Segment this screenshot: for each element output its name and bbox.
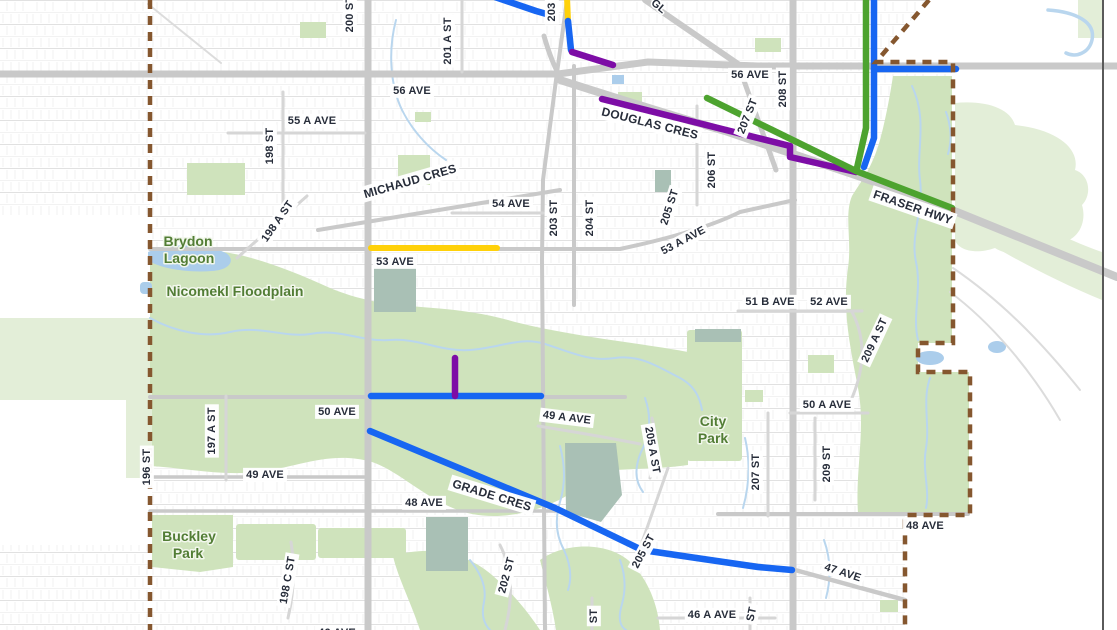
street-label: 52 AVE	[807, 295, 851, 309]
street-label-text: 49 AVE	[246, 469, 284, 481]
outside-parcels-sw	[0, 545, 150, 630]
place-label-text: Lagoon	[164, 250, 215, 266]
street-label: ST	[587, 606, 601, 627]
place-label: Park	[173, 545, 204, 561]
street-label: 203 ST	[547, 197, 561, 240]
street-label: 198 ST	[263, 125, 277, 168]
map-svg: BrydonLagoonNicomekl FloodplainCityParkB…	[0, 0, 1117, 630]
street-label: 209 ST	[820, 443, 834, 486]
place-label-text: City	[700, 413, 727, 429]
downtown-pond	[612, 75, 624, 84]
street-label: 208 ST	[776, 68, 790, 111]
street-label-text: 48 AVE	[906, 520, 944, 532]
street-label-text: 50 A AVE	[803, 399, 851, 411]
street-label-text: 54 AVE	[492, 198, 530, 210]
street-label-text: 201 A ST	[442, 17, 454, 64]
street-label: 50 A AVE	[800, 398, 854, 412]
street-label: 56 AVE	[390, 84, 434, 98]
street-label: 207 ST	[749, 451, 763, 494]
street-label: 48 AVE	[903, 519, 947, 533]
street-label: 196 ST	[140, 446, 154, 489]
street-label-text: 52 AVE	[810, 296, 848, 308]
street-label: 56 AVE	[728, 68, 772, 82]
street-label-text: 200 ST	[344, 0, 356, 32]
outside-green-west-1	[0, 318, 150, 400]
street-label: 54 AVE	[489, 197, 533, 211]
street-label-text: 46 A AVE	[688, 609, 736, 621]
street-label-text: 203	[546, 3, 558, 22]
place-label: Park	[698, 430, 729, 446]
street-label-text: 196 ST	[141, 449, 153, 486]
street-label-text: 55 A AVE	[288, 115, 336, 127]
street-label: 204 ST	[583, 197, 597, 240]
street-label-text: 209 ST	[821, 446, 833, 483]
place-label-text: Park	[698, 430, 729, 446]
street-label-text: 198 ST	[264, 128, 276, 165]
outside-parcels-nw	[0, 0, 150, 215]
street-label: 206 ST	[705, 149, 719, 192]
street-label: 48 AVE	[402, 496, 446, 510]
street-label: 55 A AVE	[285, 114, 339, 128]
street-label: 200 ST	[343, 0, 357, 35]
street-label-text: 203 ST	[548, 200, 560, 237]
greenbelt-strip-1	[236, 524, 316, 560]
street-label-text: 48 AVE	[405, 497, 443, 509]
street-label-text: 208 ST	[777, 71, 789, 108]
street-label-text: 50 AVE	[318, 406, 356, 418]
street-label-text: 56 AVE	[731, 69, 769, 81]
street-label-text: 51 B AVE	[745, 296, 794, 308]
street-label-text: ST	[588, 609, 600, 624]
street-label: 203	[545, 0, 559, 24]
map-canvas: BrydonLagoonNicomekl FloodplainCityParkB…	[0, 0, 1117, 630]
street-label: 53 AVE	[373, 255, 417, 269]
street-label: 197 A ST	[205, 404, 219, 457]
street-label: 50 AVE	[315, 405, 359, 419]
place-label-text: Nicomekl Floodplain	[167, 283, 304, 299]
street-label-text: 56 AVE	[393, 85, 431, 97]
city-park-pond	[695, 329, 741, 342]
place-label: Lagoon	[164, 250, 215, 266]
street-label: 201 A ST	[441, 14, 455, 67]
place-label-text: Park	[173, 545, 204, 561]
street-label: 49 AVE	[243, 468, 287, 482]
greenbelt-strip-2	[318, 528, 406, 558]
place-label: City	[700, 413, 727, 429]
place-label-text: Brydon	[164, 233, 213, 249]
street-label: 46 A AVE	[685, 608, 739, 622]
street-label-text: 197 A ST	[206, 407, 218, 454]
street-label-text: 53 AVE	[376, 256, 414, 268]
place-label: Buckley	[162, 528, 216, 544]
street-label: 51 B AVE	[742, 295, 797, 309]
street-label-text: 207 ST	[750, 454, 762, 491]
place-label: Brydon	[164, 233, 213, 249]
street-label-text: 206 ST	[706, 152, 718, 189]
203-st-route-blue	[568, 21, 571, 50]
detention-pond-202st	[426, 517, 468, 571]
street-label: 46 AVE	[315, 626, 359, 630]
street-label-text: 204 ST	[584, 200, 596, 237]
place-label-text: Buckley	[162, 528, 216, 544]
place-label: Nicomekl Floodplain	[167, 283, 304, 299]
